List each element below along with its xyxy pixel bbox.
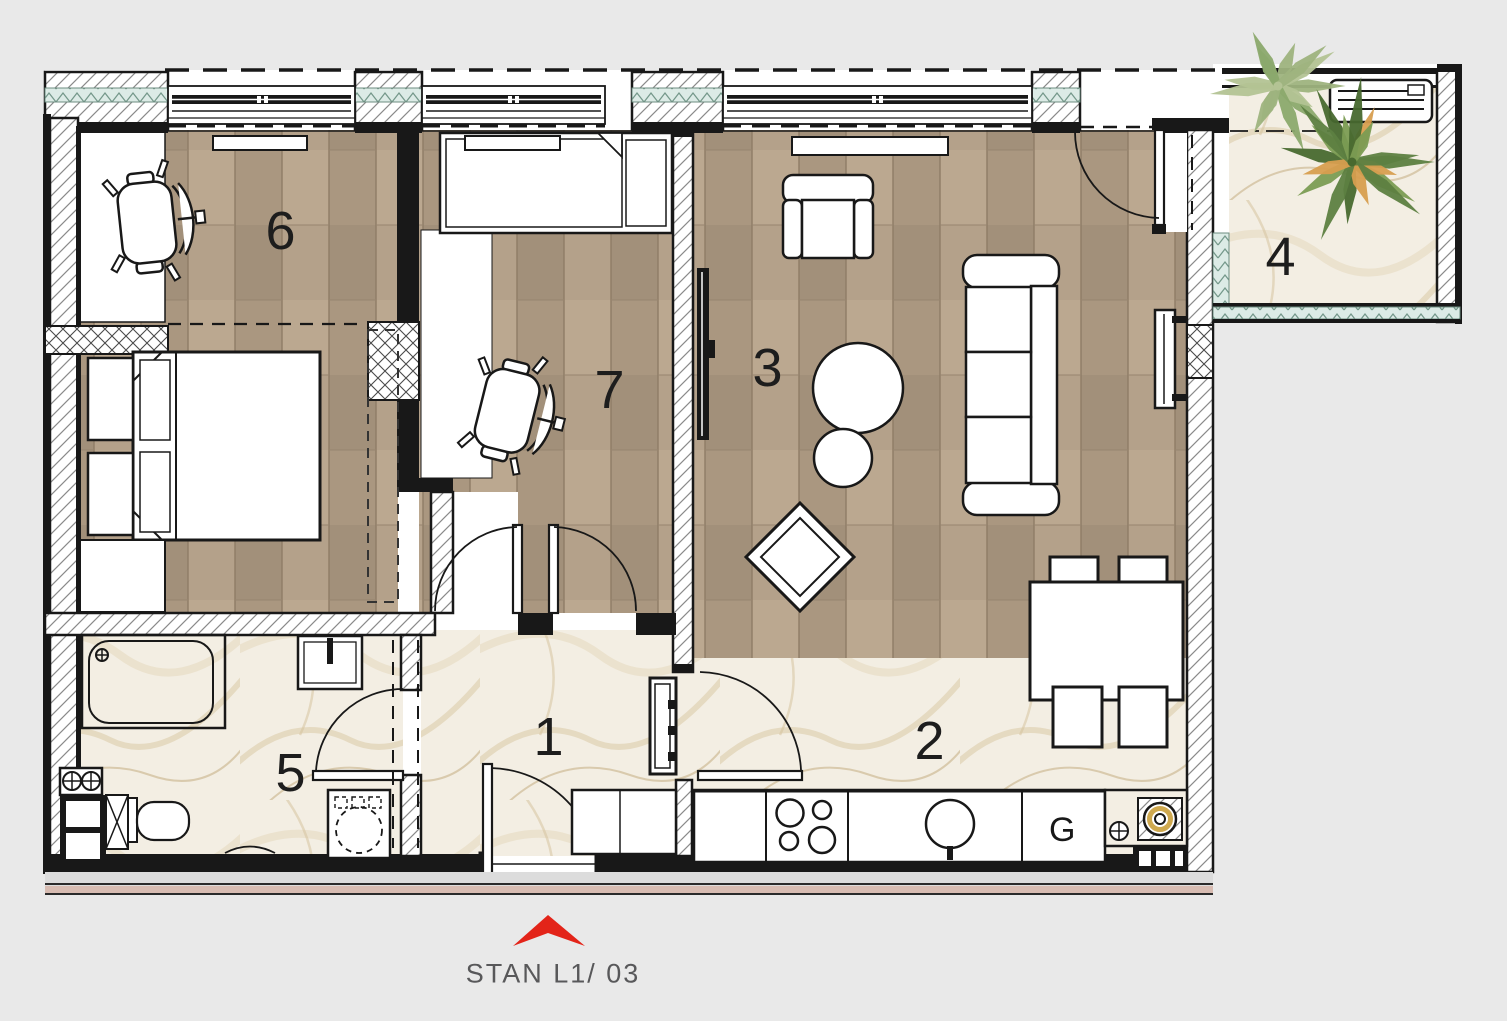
shelf xyxy=(213,136,307,150)
floor-plan: G xyxy=(0,0,1507,1021)
insulation-strip xyxy=(632,88,723,102)
room-number-6: 6 xyxy=(265,200,296,262)
wall-6-7 xyxy=(397,130,419,478)
coffee-table-small xyxy=(814,429,872,487)
hall-radiator xyxy=(650,678,676,774)
dining-table xyxy=(1030,582,1183,700)
wall-kitchen-stub xyxy=(676,780,692,856)
bathroom-sink xyxy=(298,636,362,689)
balcony-wall-right xyxy=(1437,70,1457,322)
balcony-rail xyxy=(1222,68,1460,74)
wall-7-living xyxy=(673,130,693,672)
shaft-box xyxy=(60,795,106,865)
armchair xyxy=(783,175,873,258)
bedroom-7-vestibule xyxy=(452,492,518,613)
exterior-wall-left xyxy=(50,118,78,872)
valves xyxy=(60,768,102,795)
hall-cabinet xyxy=(572,790,676,854)
room-number-3: 3 xyxy=(752,337,783,399)
shaft xyxy=(45,326,168,354)
pillow xyxy=(626,140,666,226)
shelf xyxy=(465,136,560,150)
ac-unit xyxy=(1330,80,1432,122)
nightstand xyxy=(88,358,133,440)
toilet xyxy=(124,798,189,842)
room-number-2: 2 xyxy=(914,710,945,772)
wall-hall-rooms xyxy=(45,613,435,635)
single-bed xyxy=(440,133,672,233)
window-bedroom-7 xyxy=(422,86,605,124)
fridge-symbol: G xyxy=(1049,811,1075,849)
double-bed xyxy=(133,352,320,540)
floor-plan-svg: G xyxy=(0,0,1507,1021)
shelf-x xyxy=(106,795,128,849)
balcony-rail-bottom xyxy=(1213,307,1460,319)
shaft xyxy=(368,322,419,400)
room-number-1: 1 xyxy=(533,706,564,768)
insulation-strip xyxy=(45,88,168,102)
shelf xyxy=(792,137,948,155)
plan-label: STAN L1/ 03 xyxy=(466,959,641,990)
room-number-7: 7 xyxy=(594,359,625,421)
pillow xyxy=(140,452,170,532)
dining-chair xyxy=(1119,687,1167,747)
insulation-strip xyxy=(1032,88,1080,102)
nightstand xyxy=(88,453,133,535)
room-number-4: 4 xyxy=(1265,226,1296,288)
shaft xyxy=(1187,325,1213,378)
entrance-arrow xyxy=(513,915,585,946)
washing-machine xyxy=(328,790,390,858)
insulation-strip xyxy=(355,88,422,102)
window-living xyxy=(723,86,1032,124)
dining-chair xyxy=(1053,687,1102,747)
sidewalk-band xyxy=(45,872,1213,894)
exterior-wall-right xyxy=(1187,130,1213,872)
room-number-5: 5 xyxy=(275,742,306,804)
window-bedroom-6 xyxy=(168,86,355,124)
coffee-table-large xyxy=(813,343,903,433)
pillow xyxy=(140,360,170,440)
sofa xyxy=(963,255,1059,515)
closet xyxy=(80,540,165,612)
kitchen-counter: G xyxy=(694,790,1105,862)
